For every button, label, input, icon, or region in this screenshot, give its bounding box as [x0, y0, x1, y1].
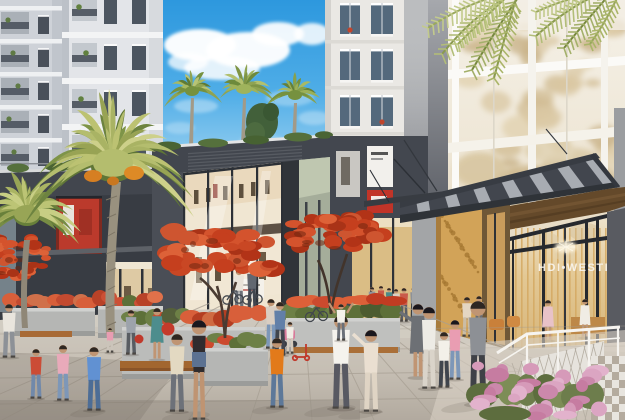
- svg-text:HDI•WESTL: HDI•WESTL: [538, 262, 613, 274]
